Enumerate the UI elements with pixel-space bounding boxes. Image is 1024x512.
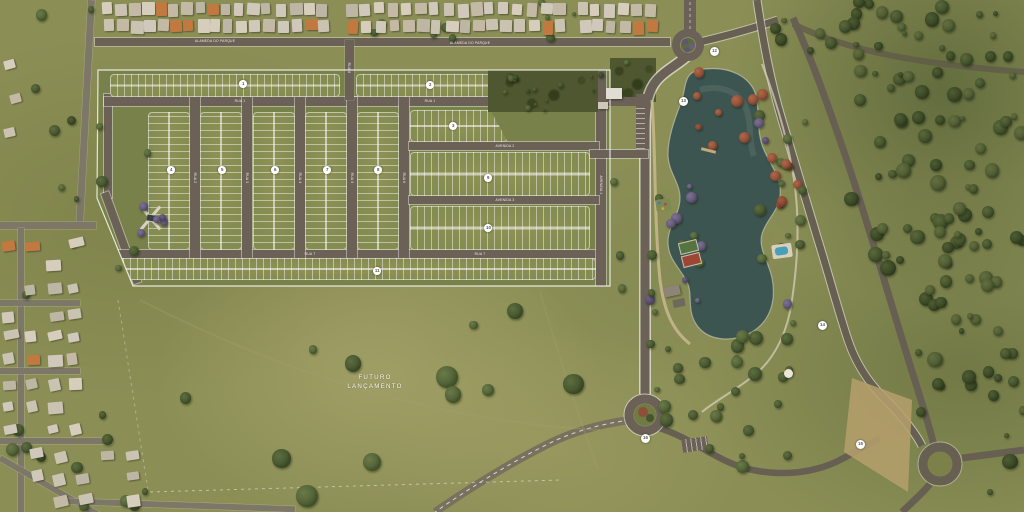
house: [69, 378, 83, 390]
house: [429, 2, 439, 16]
tree: [445, 386, 461, 402]
tree: [930, 175, 946, 191]
tree: [546, 34, 554, 42]
house: [555, 19, 566, 32]
tree: [695, 124, 701, 130]
tree: [658, 400, 671, 413]
tree: [896, 256, 904, 264]
house: [126, 494, 141, 507]
house: [25, 241, 41, 251]
tree: [785, 233, 790, 238]
house: [543, 20, 553, 34]
tree: [882, 251, 890, 259]
tree: [775, 33, 788, 46]
tree: [916, 407, 926, 417]
house: [590, 3, 599, 15]
tree: [563, 374, 584, 395]
tree: [915, 85, 929, 99]
tree: [144, 149, 151, 156]
tree: [903, 224, 912, 233]
tree: [1014, 126, 1024, 140]
tree: [695, 298, 700, 303]
tree: [739, 132, 750, 143]
tree: [910, 230, 925, 245]
tree: [896, 163, 911, 178]
tree: [874, 42, 882, 50]
tree: [660, 413, 674, 427]
tree: [74, 196, 79, 201]
house: [389, 20, 399, 32]
tree: [115, 265, 122, 272]
house: [580, 20, 592, 34]
house: [376, 21, 386, 33]
tree: [946, 51, 955, 60]
marker-number: 3: [452, 124, 454, 128]
playground-equipment-yellow: [661, 207, 664, 210]
tree: [770, 23, 780, 33]
house: [143, 20, 156, 32]
tree: [938, 254, 951, 267]
house: [261, 3, 271, 15]
house: [68, 332, 80, 343]
tree: [646, 340, 654, 348]
house: [31, 469, 44, 482]
marker-number: 5: [221, 168, 223, 172]
house: [117, 19, 129, 31]
tree: [795, 240, 804, 249]
tree: [99, 411, 107, 419]
block-marker: 9: [484, 174, 492, 182]
house: [359, 3, 371, 15]
block-marker: 16: [641, 434, 650, 443]
tree: [877, 223, 888, 234]
house: [131, 21, 144, 35]
playground: [655, 198, 671, 212]
house: [47, 282, 62, 295]
tree: [975, 143, 986, 154]
tree: [436, 366, 458, 388]
house: [234, 3, 244, 17]
house: [403, 19, 415, 32]
house: [49, 311, 64, 322]
house: [414, 3, 426, 14]
house: [645, 4, 657, 17]
tree: [715, 109, 722, 116]
tree: [987, 489, 993, 495]
tree: [975, 78, 986, 89]
marker-number: 2: [429, 83, 431, 87]
tree: [985, 163, 999, 177]
street-label: RUA 2: [193, 173, 197, 184]
tree: [345, 355, 361, 371]
tree: [960, 53, 973, 66]
tree: [694, 67, 705, 78]
house: [25, 400, 38, 413]
house: [236, 21, 248, 34]
tree: [790, 320, 796, 326]
street-label: RUA 5: [350, 173, 354, 184]
tree: [953, 202, 966, 215]
tree: [925, 285, 935, 295]
tree: [839, 20, 851, 32]
marker-number: 4: [170, 168, 172, 172]
future-launch-line2: LANÇAMENTO: [347, 382, 402, 391]
tree: [36, 9, 47, 20]
tree: [944, 213, 954, 223]
tree: [942, 19, 955, 32]
tree: [914, 31, 923, 40]
block-marker: 4: [167, 166, 175, 174]
block-marker: 3: [449, 122, 457, 130]
tree: [983, 366, 995, 378]
house: [68, 422, 81, 435]
marker-number: 12: [712, 49, 717, 53]
block-marker: 6: [271, 166, 279, 174]
tree: [781, 333, 792, 344]
tree: [507, 303, 523, 319]
block-marker: 1: [239, 80, 247, 88]
house: [263, 19, 275, 33]
tree: [686, 192, 697, 203]
block-marker: 2: [426, 81, 434, 89]
house: [102, 2, 113, 15]
house: [126, 450, 140, 460]
playground-equipment-blue: [658, 201, 661, 204]
tree: [180, 392, 192, 404]
marker-number: 14: [820, 323, 825, 327]
tree: [757, 254, 766, 263]
house: [129, 3, 141, 16]
house: [170, 20, 183, 32]
tree: [935, 115, 945, 125]
tree: [624, 60, 629, 65]
house: [316, 4, 327, 17]
tree: [948, 115, 960, 127]
house: [400, 3, 410, 15]
house: [460, 20, 471, 34]
house: [198, 19, 210, 33]
marker-number: 15: [858, 442, 863, 446]
tree: [88, 6, 94, 12]
house: [346, 3, 358, 16]
house: [500, 20, 512, 32]
tree: [962, 370, 975, 383]
house: [471, 2, 484, 17]
house: [100, 451, 113, 461]
marker-number: 13: [681, 99, 686, 103]
house: [647, 20, 658, 32]
tree: [1003, 51, 1013, 61]
block-marker: 11: [373, 267, 381, 275]
tree: [825, 37, 837, 49]
house: [275, 4, 285, 17]
tree: [139, 202, 148, 211]
house: [142, 2, 155, 15]
house: [181, 2, 193, 15]
tree: [912, 111, 925, 124]
tree: [1011, 113, 1018, 120]
house: [290, 3, 303, 15]
house: [617, 2, 629, 15]
tree: [526, 89, 529, 92]
tree: [482, 384, 494, 396]
tree: [1019, 406, 1024, 415]
tree: [673, 363, 682, 372]
house: [348, 20, 359, 34]
tree: [994, 374, 1002, 382]
tree: [930, 159, 941, 170]
house: [2, 401, 13, 411]
tree: [272, 449, 290, 467]
tree: [932, 378, 944, 390]
house: [633, 20, 644, 34]
street-label: AVENIDA 2: [495, 144, 514, 148]
house: [75, 473, 89, 485]
house: [446, 21, 459, 33]
tree: [652, 309, 658, 315]
tree: [1000, 348, 1011, 359]
tree: [795, 215, 806, 226]
block-marker: 15: [856, 440, 865, 449]
house: [444, 3, 454, 16]
tree: [96, 176, 107, 187]
house: [47, 401, 63, 414]
house: [592, 19, 603, 32]
block-marker: 7: [323, 166, 331, 174]
house: [458, 4, 470, 18]
street-label: RUA 8: [347, 63, 351, 74]
street-label: RUA 7: [475, 252, 486, 256]
street-label: RUA 6: [402, 173, 406, 184]
house: [526, 3, 536, 17]
street-label: RUA 7: [305, 252, 316, 256]
house: [292, 19, 302, 32]
gate-access-road: [590, 150, 648, 158]
house: [3, 381, 17, 391]
house: [498, 2, 508, 14]
tree: [1000, 116, 1012, 128]
house: [277, 21, 288, 33]
house: [540, 3, 552, 15]
tree: [309, 345, 317, 353]
tree: [754, 204, 766, 216]
house: [388, 3, 398, 17]
house: [196, 2, 206, 13]
tree: [985, 51, 996, 62]
street-label: AVENIDA 3: [495, 198, 514, 202]
tree: [783, 134, 793, 144]
street-label: ALAMEDA DO PARQUE: [195, 39, 235, 43]
house: [2, 311, 15, 323]
tree: [969, 184, 979, 194]
house: [486, 19, 498, 31]
tree: [954, 231, 961, 238]
tree: [71, 462, 83, 474]
tree: [1004, 433, 1009, 438]
house: [604, 3, 615, 17]
tree: [942, 242, 953, 253]
house: [46, 260, 62, 272]
house: [578, 2, 588, 15]
house: [48, 378, 61, 392]
tree: [783, 451, 792, 460]
house: [115, 3, 127, 16]
house: [514, 19, 525, 32]
street-label: ALAMEDA DO PARQUE: [450, 41, 490, 45]
tree: [770, 171, 781, 182]
tree: [534, 103, 537, 106]
marker-number: 10: [486, 226, 491, 230]
house: [528, 20, 539, 31]
tree: [894, 113, 907, 126]
tree: [990, 32, 997, 39]
tree: [731, 356, 743, 368]
tree: [940, 275, 953, 288]
tree: [932, 67, 943, 78]
tree: [967, 313, 973, 319]
house: [2, 240, 17, 251]
tree: [96, 123, 103, 130]
tree: [964, 160, 974, 170]
house: [484, 2, 494, 15]
tree: [363, 453, 381, 471]
tree: [525, 105, 531, 111]
house: [416, 19, 429, 32]
house: [2, 352, 15, 365]
house: [304, 2, 315, 15]
house: [318, 20, 330, 33]
house: [168, 4, 179, 17]
street-label: RUA 1: [425, 99, 436, 103]
block-marker: 13: [679, 97, 688, 106]
house: [249, 20, 260, 32]
tree: [951, 314, 962, 325]
house: [48, 354, 64, 366]
playground-equipment-red: [664, 203, 667, 206]
tree: [777, 196, 787, 206]
future-launch-label: FUTURO LANÇAMENTO: [347, 373, 402, 392]
tree: [993, 326, 1003, 336]
house: [247, 3, 260, 16]
house: [208, 4, 220, 16]
tree: [1002, 454, 1017, 469]
tree: [616, 251, 624, 259]
tree: [731, 95, 743, 107]
house: [361, 20, 371, 32]
block-marker: 5: [218, 166, 226, 174]
tree: [648, 289, 656, 297]
admin-building: [598, 102, 608, 109]
house: [512, 4, 522, 16]
street-label: RUA 3: [245, 173, 249, 184]
house: [25, 378, 38, 390]
tree: [1009, 72, 1016, 79]
marker-number: 7: [326, 168, 328, 172]
masterplan-canvas: 12345678910111213141516 ALAMEDA DO PARQU…: [0, 0, 1024, 512]
house: [619, 20, 630, 32]
house: [473, 20, 485, 32]
tree: [513, 75, 518, 80]
house: [210, 19, 220, 32]
house: [631, 4, 642, 16]
gatehouse-building: [606, 88, 622, 99]
tree: [1010, 231, 1023, 244]
tree: [665, 346, 671, 352]
tree: [693, 92, 701, 100]
tree: [710, 410, 722, 422]
block-marker: 8: [374, 166, 382, 174]
tree: [927, 352, 942, 367]
gazebo: [784, 369, 793, 378]
tree: [618, 284, 627, 293]
marker-number: 16: [643, 436, 648, 440]
house: [27, 354, 41, 364]
block-marker: 10: [484, 224, 492, 232]
house: [431, 20, 441, 34]
tree: [976, 11, 983, 18]
tree: [868, 247, 883, 262]
tree: [736, 330, 749, 343]
tree: [739, 453, 745, 459]
block-marker: 12: [710, 47, 719, 56]
house: [553, 3, 566, 15]
tree: [802, 119, 808, 125]
street-label: RUA 1: [235, 99, 246, 103]
tree: [960, 116, 965, 121]
future-launch-line1: FUTURO: [347, 373, 402, 382]
house: [606, 21, 616, 34]
tree: [674, 374, 685, 385]
house: [104, 19, 115, 31]
house: [221, 3, 231, 15]
tree: [31, 84, 40, 93]
marker-number: 1: [242, 82, 244, 86]
tree: [129, 246, 139, 256]
house: [374, 2, 385, 14]
house: [183, 20, 194, 32]
tree: [783, 299, 792, 308]
house: [66, 352, 78, 365]
house: [223, 19, 233, 33]
tree: [918, 129, 932, 143]
house: [24, 330, 36, 342]
tree: [959, 328, 964, 333]
marker-number: 11: [375, 269, 380, 273]
tree: [853, 48, 864, 59]
tree: [781, 18, 786, 23]
tree: [469, 321, 478, 330]
block-marker: 14: [818, 321, 827, 330]
house: [155, 2, 167, 16]
marker-number: 8: [377, 168, 379, 172]
tree: [939, 45, 945, 51]
street-label: RUA 4: [298, 173, 302, 184]
street-label: AVENIDA 1: [599, 175, 603, 194]
tree: [854, 65, 866, 77]
tree: [965, 274, 974, 283]
house: [24, 285, 36, 296]
tree: [296, 485, 317, 506]
house: [157, 19, 168, 31]
tree: [815, 28, 825, 38]
marker-number: 6: [274, 168, 276, 172]
tree: [947, 87, 962, 102]
marker-number: 9: [487, 176, 489, 180]
